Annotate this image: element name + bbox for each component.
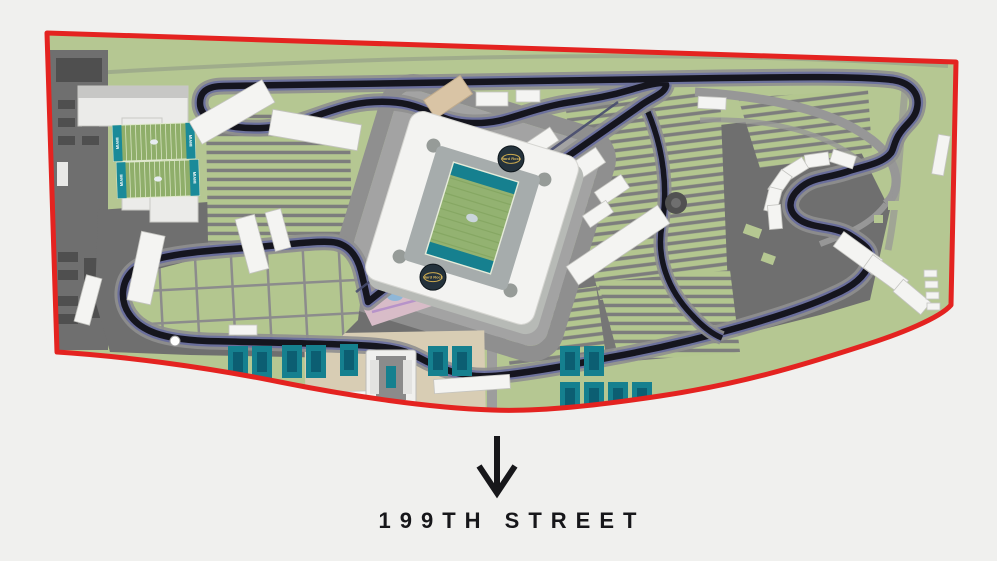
end-zone-label: MIAMI bbox=[188, 135, 193, 147]
building bbox=[698, 96, 727, 109]
building bbox=[926, 292, 939, 299]
hard-rock-logo: Hard Rock bbox=[498, 146, 524, 172]
end-zone-label: MIAMI bbox=[119, 174, 124, 186]
building bbox=[476, 92, 508, 106]
street-label: 199TH STREET bbox=[379, 508, 646, 533]
building bbox=[927, 303, 940, 310]
grandstand bbox=[767, 204, 782, 229]
building bbox=[516, 90, 540, 102]
hard-rock-logo-text: Hard Rock bbox=[423, 275, 444, 280]
end-zone-label: MIAMI bbox=[192, 172, 197, 184]
hard-rock-logo: Hard Rock bbox=[420, 264, 446, 290]
miami-circuit-site-map: MIAMI MIAMI MIAMI MIAMI bbox=[0, 0, 997, 561]
grandstand bbox=[804, 152, 830, 168]
building bbox=[229, 325, 257, 335]
fountain bbox=[665, 192, 687, 214]
end-zone-label: MIAMI bbox=[115, 137, 120, 149]
building bbox=[924, 270, 937, 277]
building bbox=[925, 281, 938, 288]
hard-rock-logo-text: Hard Rock bbox=[501, 156, 522, 161]
start-finish-dot bbox=[170, 336, 180, 346]
